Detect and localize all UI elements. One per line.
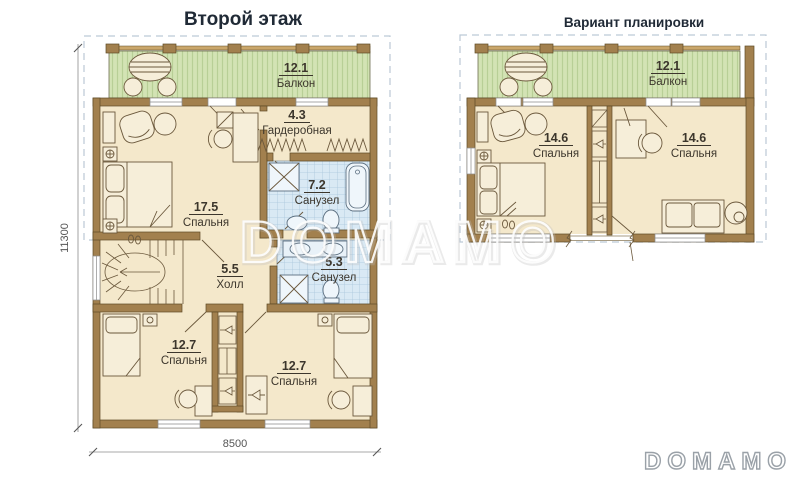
dimension-vertical: 11300 bbox=[59, 44, 82, 432]
pillow-icon bbox=[106, 165, 124, 192]
svg-text:8500: 8500 bbox=[223, 438, 247, 450]
nightstand-icon bbox=[477, 150, 491, 163]
balcony-chair-icon bbox=[534, 78, 552, 96]
pouf-icon bbox=[154, 113, 176, 135]
wall-break bbox=[566, 231, 635, 261]
balcony-chair-icon bbox=[158, 78, 176, 96]
desk-icon bbox=[353, 386, 372, 416]
svg-text:Спальня: Спальня bbox=[161, 355, 207, 367]
svg-text:Санузел: Санузел bbox=[295, 195, 340, 207]
desk-icon bbox=[233, 113, 258, 162]
svg-text:12.7: 12.7 bbox=[172, 338, 196, 352]
single-bed-icon bbox=[103, 314, 140, 376]
balcony-door bbox=[208, 98, 236, 106]
pillow-icon bbox=[337, 317, 369, 333]
svg-text:Балкон: Балкон bbox=[277, 78, 316, 90]
nightstand-icon bbox=[143, 314, 157, 326]
svg-text:11300: 11300 bbox=[59, 223, 71, 253]
corner-shelf-icon bbox=[217, 112, 233, 128]
svg-text:14.6: 14.6 bbox=[544, 131, 568, 145]
balcony-chair-icon bbox=[500, 78, 518, 96]
svg-text:12.1: 12.1 bbox=[284, 61, 308, 75]
svg-text:DOMAMO: DOMAMO bbox=[240, 210, 565, 275]
svg-text:17.5: 17.5 bbox=[194, 200, 218, 214]
bathtub-icon bbox=[346, 163, 369, 211]
watermark-center: DOMAMO DOMAMO bbox=[240, 210, 566, 276]
svg-text:7.2: 7.2 bbox=[308, 178, 325, 192]
double-bed-icon bbox=[103, 162, 172, 227]
svg-text:12.7: 12.7 bbox=[282, 359, 306, 373]
svg-text:Балкон: Балкон bbox=[649, 76, 688, 88]
svg-text:14.6: 14.6 bbox=[682, 131, 706, 145]
floor-plan-canvas: 12.1 Балкон 4.3 Гардеробная 7.2 Санузел … bbox=[0, 0, 800, 480]
balcony bbox=[106, 44, 370, 98]
shelf-icon bbox=[103, 112, 115, 143]
balcony-door bbox=[646, 98, 671, 106]
svg-text:Холл: Холл bbox=[216, 279, 243, 291]
shower-icon bbox=[269, 163, 299, 191]
right-plan-title: Вариант планировки bbox=[564, 15, 704, 30]
watermark-logo: DOMAMO bbox=[644, 448, 792, 475]
desk-icon bbox=[616, 120, 646, 158]
svg-text:Спальня: Спальня bbox=[271, 376, 317, 388]
svg-text:Спальня: Спальня bbox=[533, 148, 579, 160]
svg-text:12.1: 12.1 bbox=[656, 59, 680, 73]
dimension-horizontal: 8500 bbox=[89, 438, 381, 456]
svg-text:5.5: 5.5 bbox=[221, 262, 238, 276]
desk-icon bbox=[195, 386, 212, 416]
double-bed-icon bbox=[477, 163, 545, 216]
pillow-icon bbox=[480, 166, 497, 189]
left-plan-title: Второй этаж bbox=[184, 9, 302, 30]
balcony-chair-icon bbox=[124, 78, 142, 96]
shelf-icon bbox=[477, 112, 488, 142]
svg-text:Гардеробная: Гардеробная bbox=[262, 125, 332, 137]
balcony-door bbox=[496, 98, 521, 106]
svg-text:Спальня: Спальня bbox=[183, 217, 229, 229]
door-leaf bbox=[630, 242, 633, 261]
single-bed-icon bbox=[334, 314, 372, 378]
shower-icon bbox=[280, 275, 308, 303]
svg-text:4.3: 4.3 bbox=[288, 108, 305, 122]
balcony bbox=[475, 44, 754, 98]
pillow-icon bbox=[106, 317, 137, 333]
closet-icon bbox=[246, 376, 267, 414]
nightstand-icon bbox=[318, 314, 332, 326]
svg-text:Спальня: Спальня bbox=[671, 148, 717, 160]
nightstand-icon bbox=[103, 219, 117, 233]
floor-plan-drawing: 12.1 Балкон 4.3 Гардеробная 7.2 Санузел … bbox=[0, 0, 800, 480]
sofa-icon bbox=[662, 200, 724, 233]
nightstand-icon bbox=[103, 147, 117, 161]
side-chair-icon bbox=[725, 202, 747, 224]
